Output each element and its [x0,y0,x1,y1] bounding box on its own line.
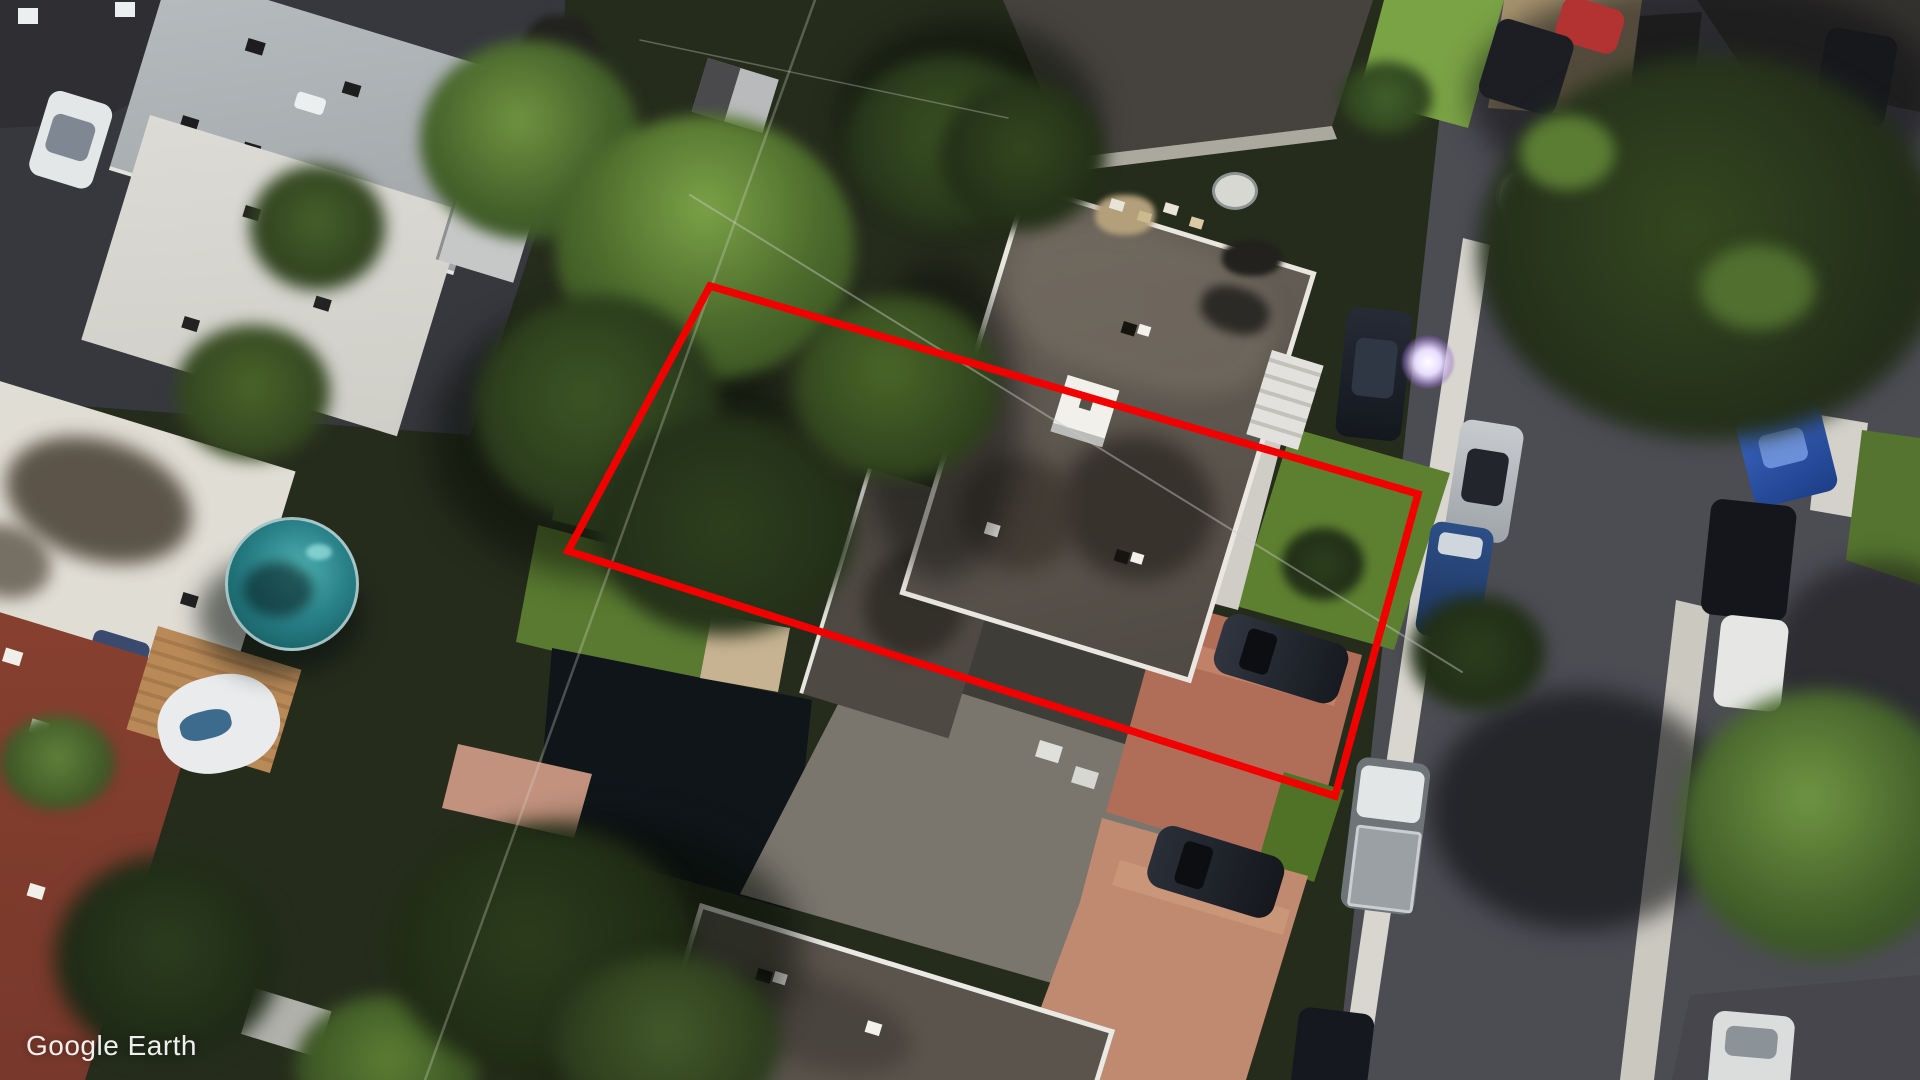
annotation-overlay [0,0,1920,1080]
google-earth-watermark: Google Earth [26,1030,197,1062]
power-line [640,40,1008,118]
aerial-imagery-viewport[interactable]: Google Earth [0,0,1920,1080]
fence-line [425,0,815,1080]
power-line [690,195,1462,672]
property-outline [568,286,1418,796]
